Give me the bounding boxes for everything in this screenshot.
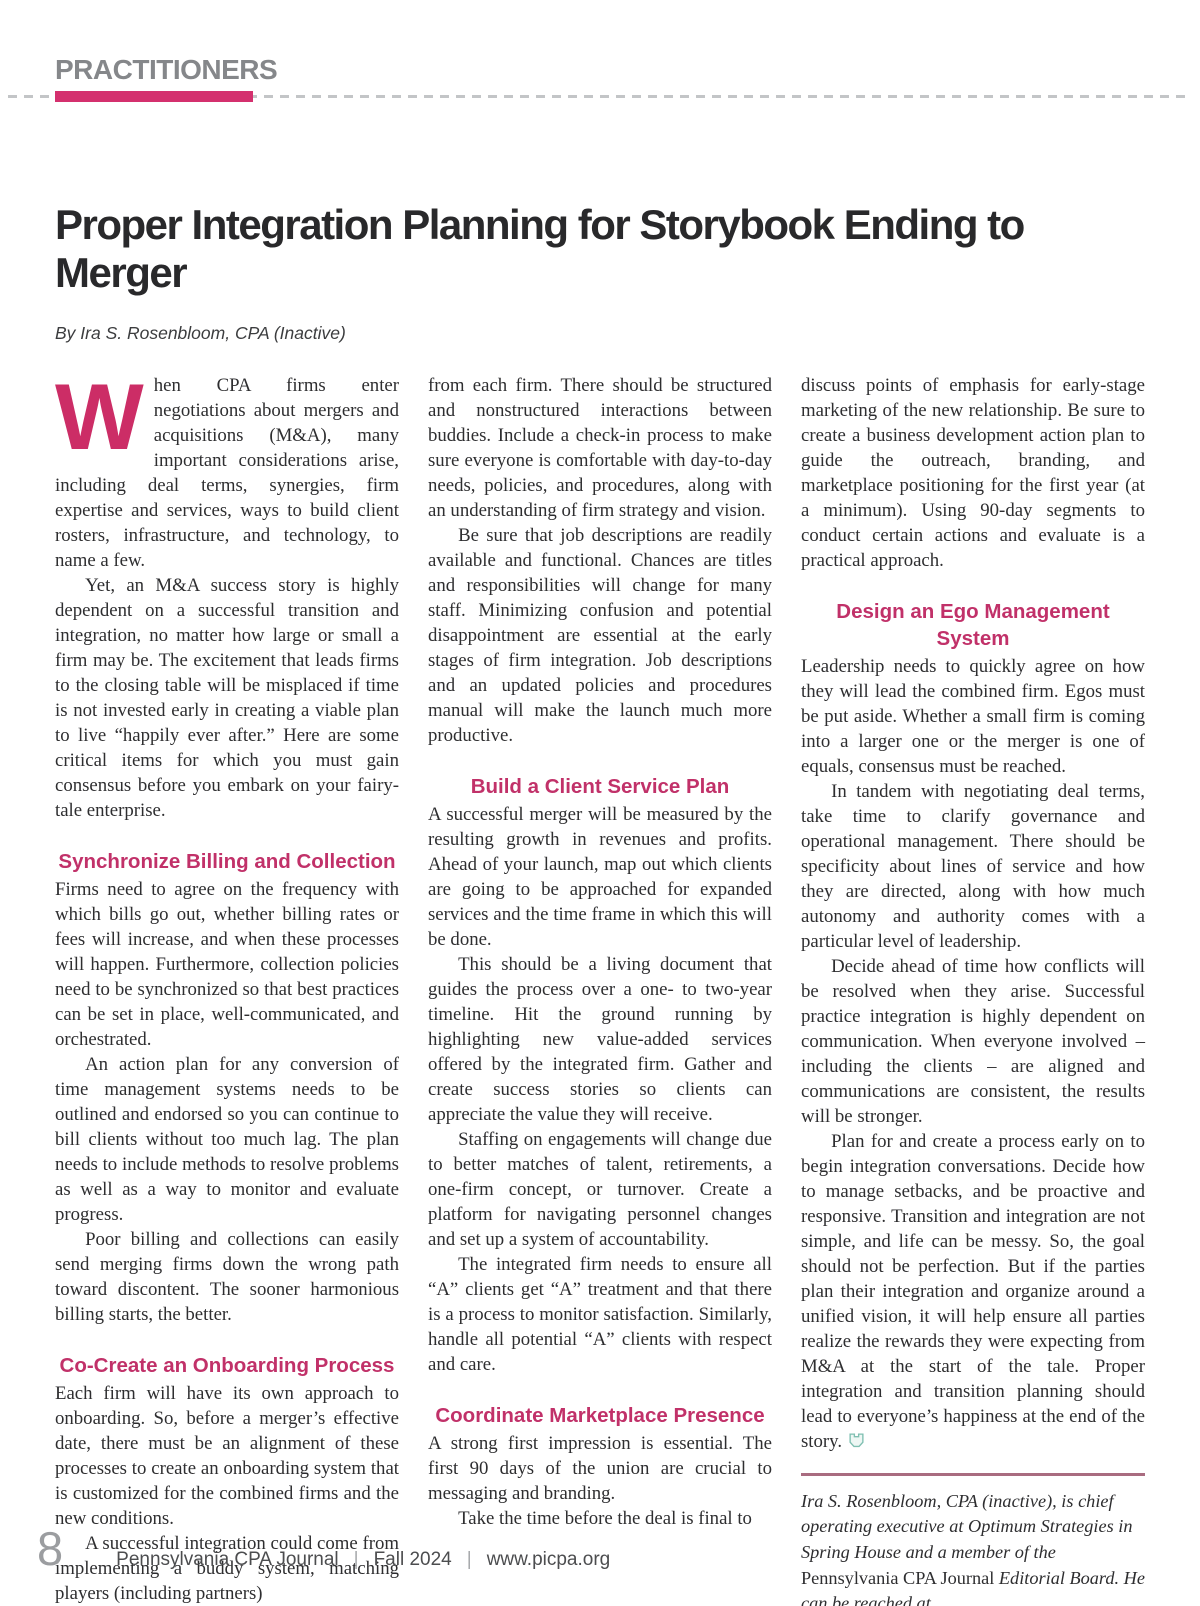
- accent-bar: [55, 91, 253, 102]
- paragraph: An action plan for any conversion of tim…: [55, 1053, 399, 1228]
- section-label: PRACTITIONERS: [55, 54, 1145, 86]
- footer-journal-name: Pennsylvania CPA Journal: [116, 1549, 339, 1571]
- paragraph: A strong first impression is essential. …: [428, 1432, 772, 1507]
- paragraph: Firms need to agree on the frequency wit…: [55, 878, 399, 1053]
- author-bio: Ira S. Rosenbloom, CPA (inactive), is ch…: [801, 1473, 1145, 1606]
- paragraph: Decide ahead of time how conflicts will …: [801, 955, 1145, 1130]
- paragraph: from each firm. There should be structur…: [428, 374, 772, 524]
- column-2: from each firm. There should be structur…: [428, 374, 772, 1606]
- header-rule: [0, 91, 1200, 103]
- paragraph-dropcap: When CPA firms enter negotiations about …: [55, 374, 399, 574]
- paragraph: Each firm will have its own approach to …: [55, 1382, 399, 1532]
- page-number: 8: [37, 1521, 63, 1576]
- article-title: Proper Integration Planning for Storyboo…: [55, 201, 1145, 297]
- paragraph: Staffing on engagements will change due …: [428, 1128, 772, 1253]
- byline: By Ira S. Rosenbloom, CPA (Inactive): [55, 323, 1145, 344]
- paragraph: This should be a living document that gu…: [428, 953, 772, 1128]
- footer-issue: Fall 2024: [374, 1549, 452, 1571]
- paragraph: The integrated firm needs to ensure all …: [428, 1253, 772, 1378]
- paragraph-closing: Plan for and create a process early on t…: [801, 1130, 1145, 1455]
- drop-cap: W: [55, 383, 144, 451]
- section-heading-marketplace: Coordinate Marketplace Presence: [428, 1402, 772, 1429]
- footer-items: Pennsylvania CPA Journal | Fall 2024 | w…: [116, 1549, 610, 1571]
- paragraph: In tandem with negotiating deal terms, t…: [801, 780, 1145, 955]
- paragraph: discuss points of emphasis for early-sta…: [801, 374, 1145, 574]
- paragraph: A successful merger will be measured by …: [428, 803, 772, 953]
- bio-text-italic: Ira S. Rosenbloom, CPA (inactive), is ch…: [801, 1491, 1133, 1562]
- paragraph-text: Plan for and create a process early on t…: [801, 1131, 1145, 1452]
- section-heading-ego: Design an Ego Management System: [801, 598, 1145, 653]
- article-body: When CPA firms enter negotiations about …: [55, 374, 1145, 1606]
- section-heading-client-service: Build a Client Service Plan: [428, 773, 772, 800]
- footer-url: www.picpa.org: [487, 1549, 611, 1571]
- paragraph: Leadership needs to quickly agree on how…: [801, 655, 1145, 780]
- page-footer: 8 Pennsylvania CPA Journal | Fall 2024 |…: [37, 1521, 610, 1576]
- magazine-page: PRACTITIONERS Proper Integration Plannin…: [0, 0, 1200, 1606]
- paragraph: Yet, an M&A success story is highly depe…: [55, 574, 399, 824]
- footer-separator: |: [467, 1549, 472, 1571]
- paragraph: Be sure that job descriptions are readil…: [428, 524, 772, 749]
- column-3: discuss points of emphasis for early-sta…: [801, 374, 1145, 1606]
- keystone-end-icon: [848, 1432, 865, 1449]
- paragraph: Poor billing and collections can easily …: [55, 1228, 399, 1328]
- column-1: When CPA firms enter negotiations about …: [55, 374, 399, 1606]
- bio-journal-name: Pennsylvania CPA Journal: [801, 1568, 999, 1588]
- footer-separator: |: [354, 1549, 359, 1571]
- section-heading-billing: Synchronize Billing and Collection: [55, 848, 399, 875]
- section-heading-onboarding: Co-Create an Onboarding Process: [55, 1352, 399, 1379]
